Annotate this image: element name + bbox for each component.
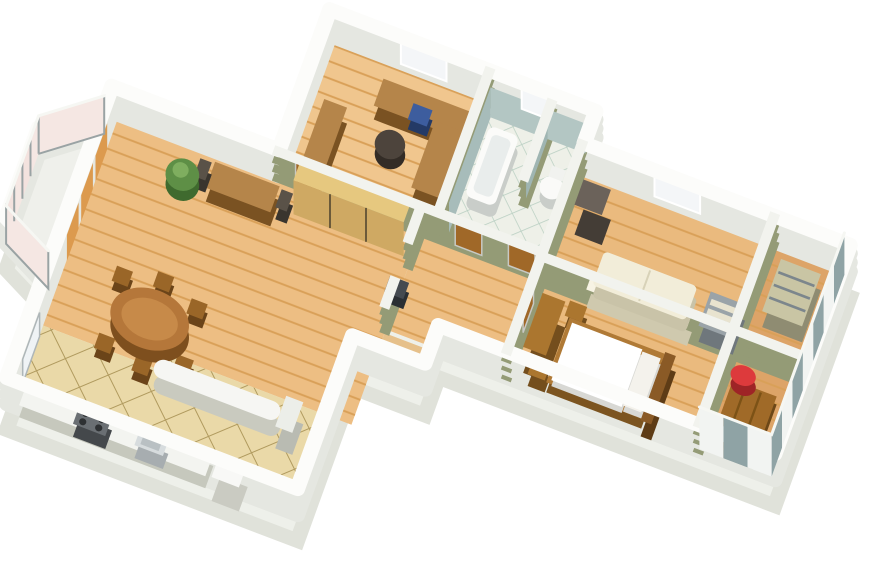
apartment-3d-svg xyxy=(0,0,880,583)
floorplan-render-stage xyxy=(0,0,880,583)
